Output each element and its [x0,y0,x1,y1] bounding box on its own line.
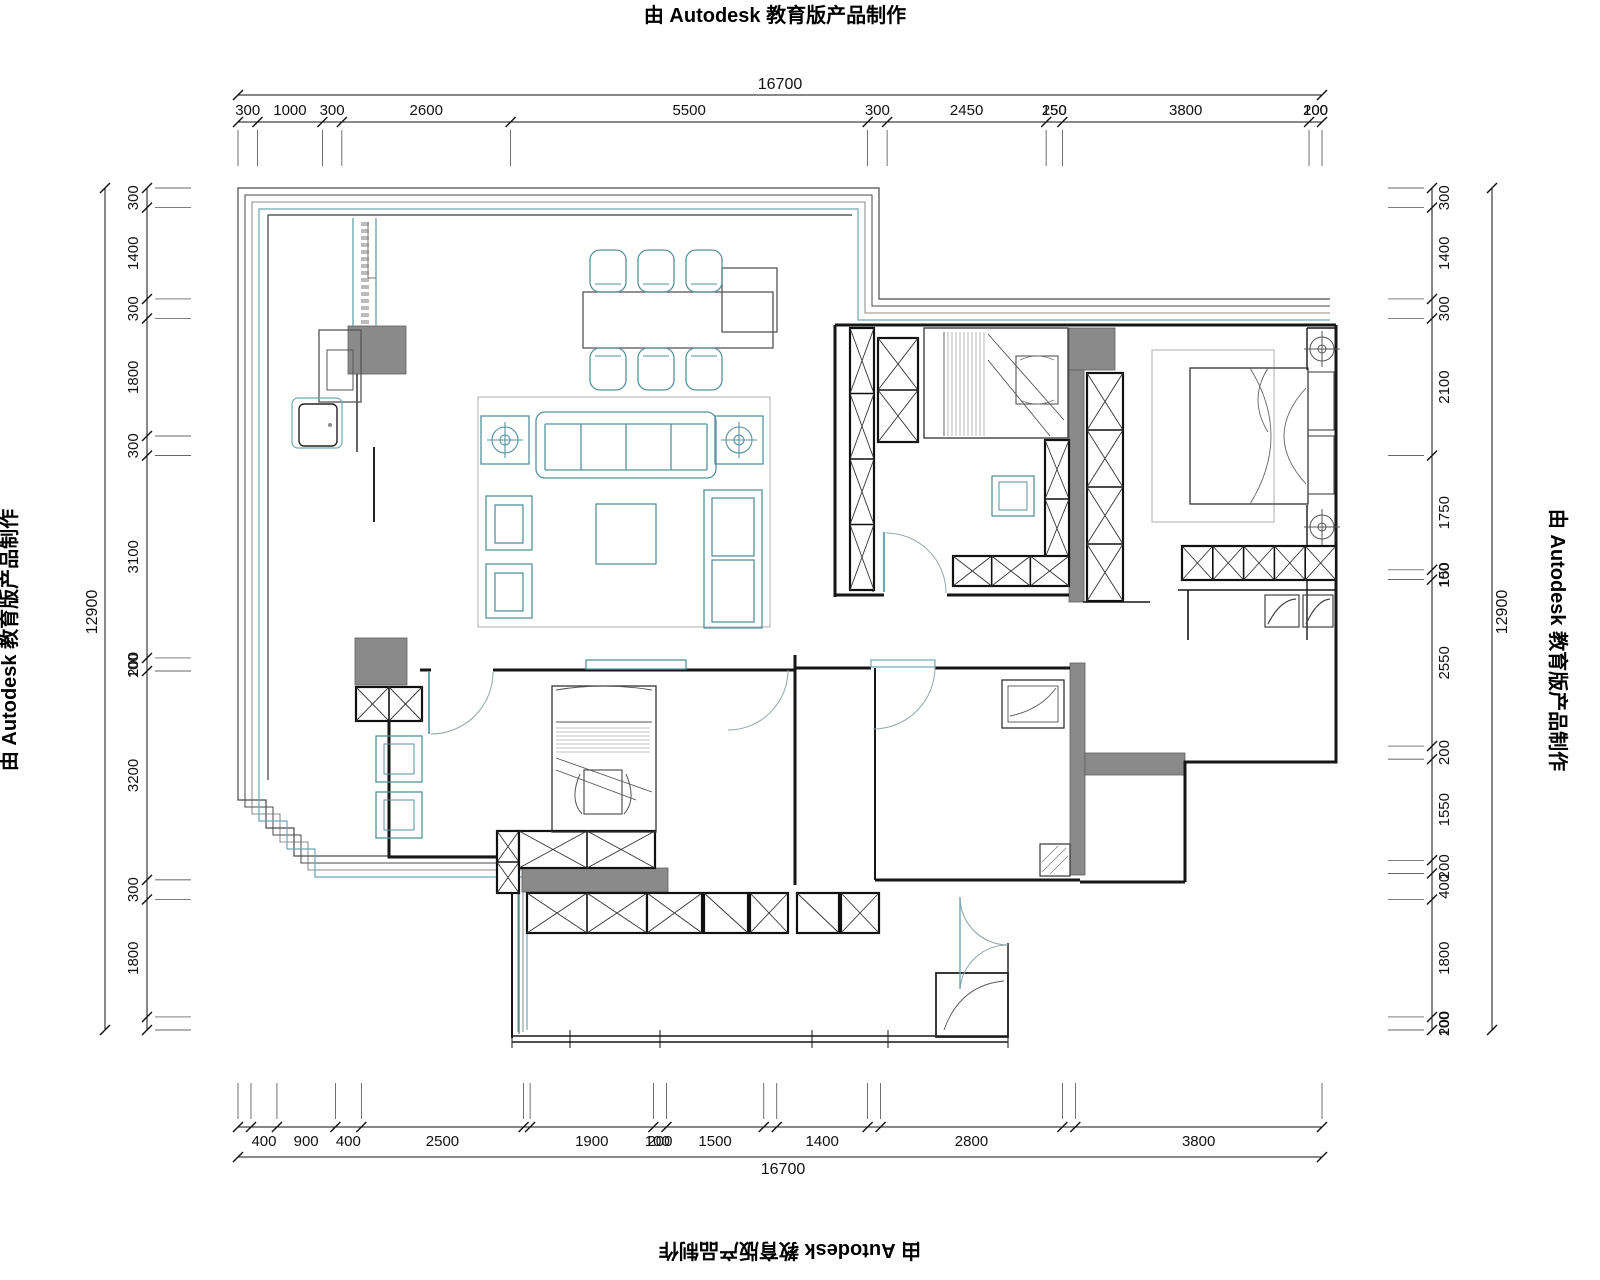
svg-text:300: 300 [125,185,142,210]
svg-text:12900: 12900 [1494,590,1511,635]
svg-text:1400: 1400 [125,237,142,270]
hatch-cabinet [527,893,647,933]
dimension-chain-top: 3001000300260055003002450250380020015010… [233,102,1328,166]
svg-text:3800: 3800 [1182,1133,1215,1150]
dimension-total-top: 16700 [233,76,1327,100]
drawing-sheet: 由 Autodesk 教育版产品制作 由 Autodesk 教育版产品制作 由 … [0,0,1600,1280]
svg-text:5500: 5500 [672,102,705,119]
svg-text:100: 100 [1303,102,1328,119]
dimension-total-right: 12900 [1487,183,1511,1035]
watermark-top: 由 Autodesk 教育版产品制作 [644,3,906,27]
hatch-cabinet [1045,440,1069,558]
entry [936,973,1008,1037]
watermark-right: 由 Autodesk 教育版产品制作 [1546,509,1570,771]
svg-text:300: 300 [865,102,890,119]
dining-set [583,250,777,390]
svg-text:300: 300 [125,296,142,321]
dimension-chain-bottom: 400900400250019002001500140028003800100 [233,1083,1327,1150]
hatch-cabinet [797,893,839,933]
svg-text:400: 400 [336,1133,361,1150]
dining-chairs [590,250,722,390]
svg-text:2100: 2100 [1436,370,1453,403]
svg-text:2500: 2500 [426,1133,459,1150]
hatch-cabinet [850,328,874,590]
svg-text:200: 200 [1436,740,1453,765]
svg-text:2600: 2600 [410,102,443,119]
svg-text:1900: 1900 [575,1133,608,1150]
svg-text:300: 300 [320,102,345,119]
svg-text:100: 100 [1436,1012,1453,1037]
svg-text:100: 100 [645,1133,670,1150]
hatch-cabinet [519,831,655,868]
svg-text:100: 100 [1436,563,1453,588]
hatch-cabinet [704,893,748,933]
hatch-cabinet [497,831,519,893]
svg-text:16700: 16700 [758,76,803,93]
svg-text:1400: 1400 [1436,237,1453,270]
svg-text:12900: 12900 [84,590,101,635]
living-room-set [478,397,770,669]
svg-text:2800: 2800 [955,1133,988,1150]
svg-text:100: 100 [125,653,142,678]
dimension-total-left: 12900 [84,183,110,1035]
wardrobe-cabinets [356,328,1336,933]
hatch-cabinet [1087,373,1123,601]
dresser-drawers [1265,595,1333,627]
svg-text:1400: 1400 [806,1133,839,1150]
watermark-bottom: 由 Autodesk 教育版产品制作 [659,1239,921,1263]
svg-text:16700: 16700 [761,1161,806,1178]
svg-text:150: 150 [1042,102,1067,119]
svg-text:300: 300 [125,433,142,458]
hatch-cabinet [750,893,788,933]
concrete-columns [348,326,1185,892]
hatch-cabinet [953,556,1069,586]
svg-text:1800: 1800 [125,942,142,975]
svg-text:1750: 1750 [1436,496,1453,529]
svg-text:1550: 1550 [1436,793,1453,826]
dimension-total-bottom: 16700 [233,1152,1327,1178]
watermark-left: 由 Autodesk 教育版产品制作 [0,509,21,771]
svg-text:300: 300 [1436,296,1453,321]
svg-text:3800: 3800 [1169,102,1202,119]
svg-text:400: 400 [251,1133,276,1150]
svg-text:2550: 2550 [1436,646,1453,679]
svg-text:2450: 2450 [950,102,983,119]
dimension-chain-right: 3001400300210017501502550200155020040018… [1388,183,1453,1037]
hatch-cabinet [356,687,422,721]
svg-text:3200: 3200 [125,759,142,792]
svg-text:300: 300 [125,877,142,902]
svg-text:900: 900 [294,1133,319,1150]
hatch-cabinet [841,893,879,933]
hatch-cabinet [647,893,702,933]
svg-text:1800: 1800 [1436,942,1453,975]
svg-text:400: 400 [1436,874,1453,899]
svg-text:300: 300 [235,102,260,119]
svg-text:1000: 1000 [273,102,306,119]
hatch-cabinet [878,338,918,442]
floor-plan: 由 Autodesk 教育版产品制作 由 Autodesk 教育版产品制作 由 … [0,0,1600,1280]
hatch-cabinet [1182,546,1336,580]
dimension-chain-left: 30014003001800300310020032003001800100 [125,183,191,1035]
bathroom-fixtures [1002,680,1070,876]
svg-text:1800: 1800 [125,361,142,394]
svg-text:3100: 3100 [125,540,142,573]
svg-text:300: 300 [1436,185,1453,210]
svg-text:1500: 1500 [698,1133,731,1150]
master-bedroom [1152,331,1340,627]
